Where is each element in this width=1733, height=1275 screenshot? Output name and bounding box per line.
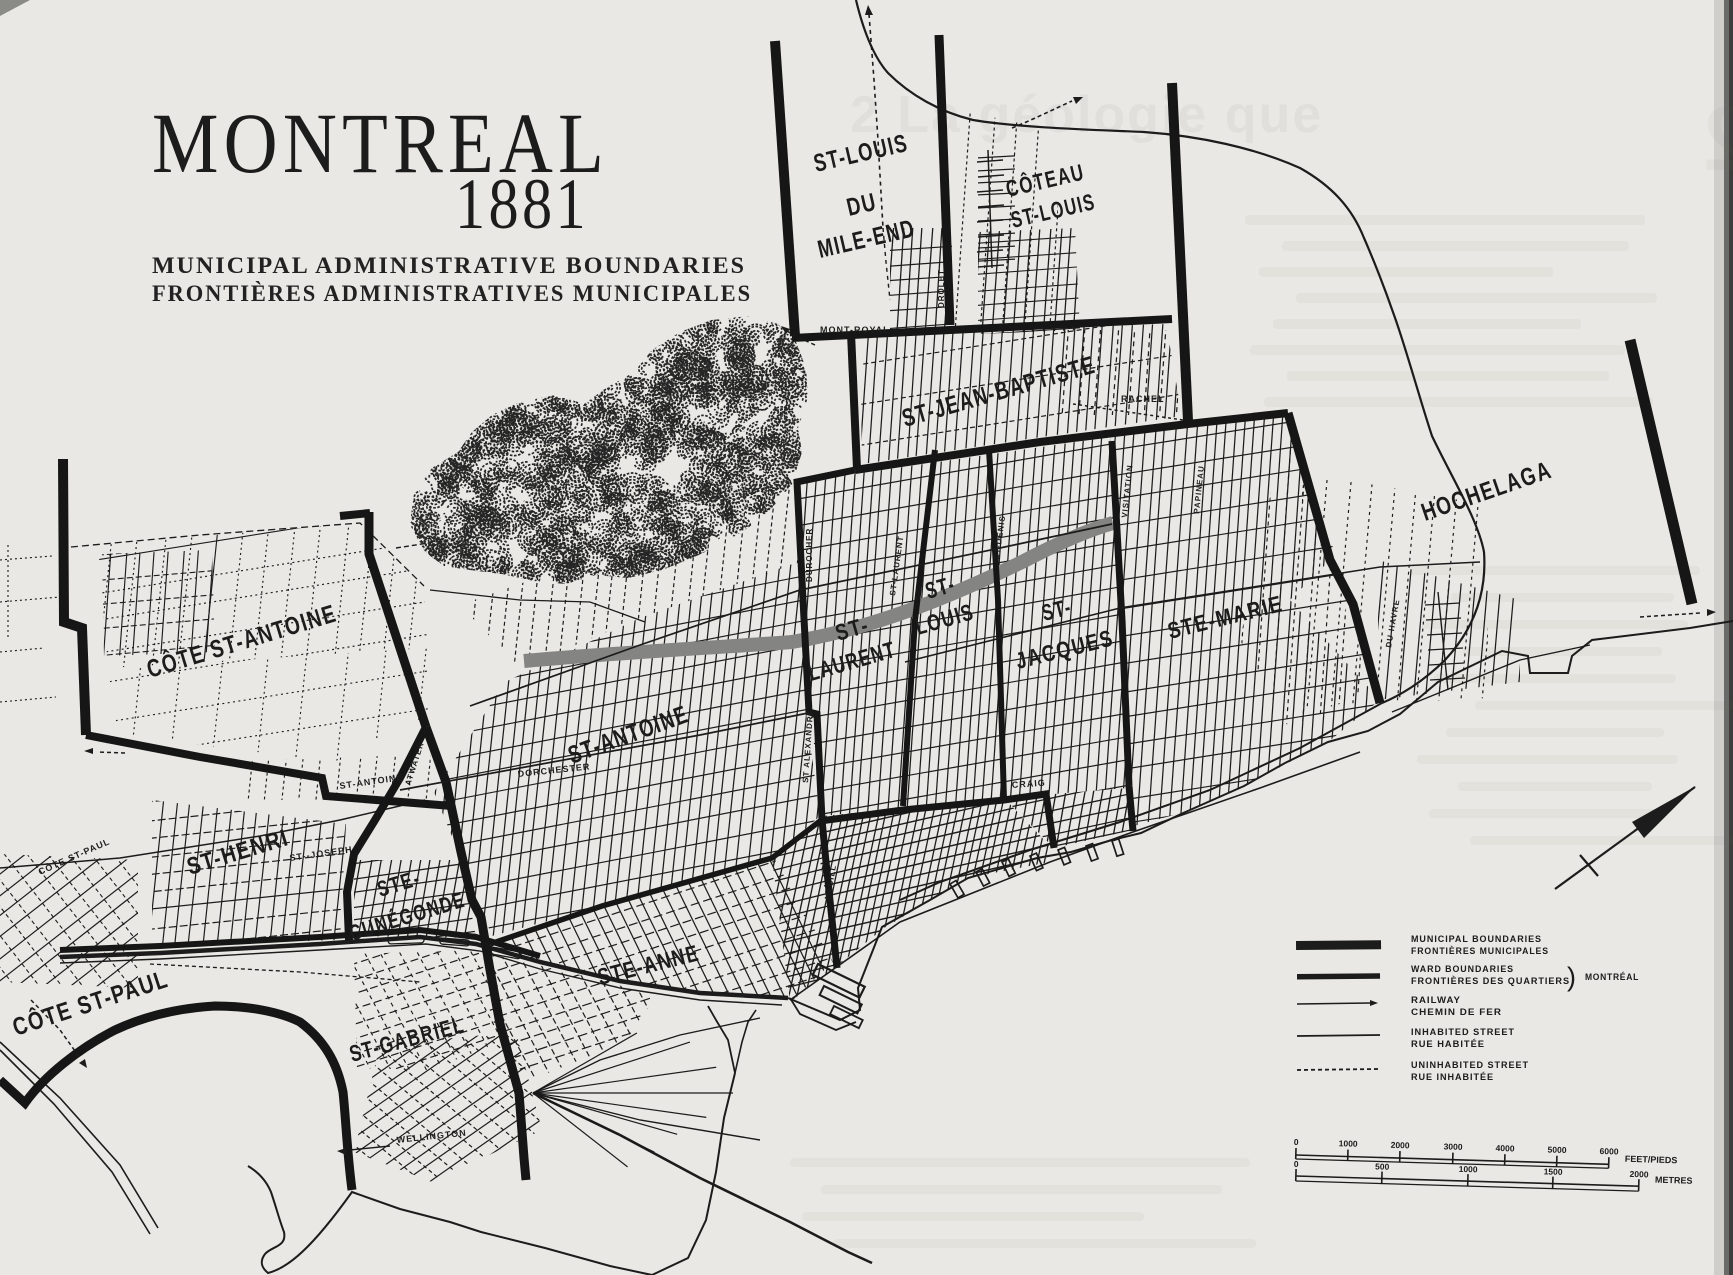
- svg-text:MUNICIPAL BOUNDARIES: MUNICIPAL BOUNDARIES: [1411, 934, 1542, 945]
- svg-text:FEET/PIEDS: FEET/PIEDS: [1625, 1154, 1678, 1166]
- svg-text:FRONTIÈRES MUNICIPALES: FRONTIÈRES MUNICIPALES: [1411, 946, 1549, 957]
- svg-text:RUE INHABITÉE: RUE INHABITÉE: [1411, 1072, 1494, 1083]
- svg-text:FRONTIÈRES ADMINISTRATIVES M: FRONTIÈRES ADMINISTRATIVES MUNICIPALES: [152, 281, 752, 307]
- svg-text:2000: 2000: [1391, 1140, 1410, 1151]
- svg-text:1500: 1500: [1544, 1166, 1563, 1177]
- svg-text:1000: 1000: [1339, 1138, 1358, 1149]
- svg-text:4000: 4000: [1496, 1143, 1515, 1154]
- svg-text:INHABITED STREET: INHABITED STREET: [1411, 1027, 1515, 1038]
- svg-text:RACHEL: RACHEL: [1121, 394, 1165, 404]
- svg-text:6000: 6000: [1599, 1146, 1618, 1157]
- svg-text:FRONTIÈRES DES QUARTIERS: FRONTIÈRES DES QUARTIERS: [1411, 976, 1570, 987]
- svg-text:RUE HABITÉE: RUE HABITÉE: [1411, 1039, 1485, 1050]
- svg-text:CHEMIN DE FER: CHEMIN DE FER: [1411, 1007, 1502, 1018]
- svg-text:DUROCHER: DUROCHER: [805, 528, 814, 582]
- svg-text:MONTRÉAL: MONTRÉAL: [1585, 972, 1639, 983]
- svg-text:): ): [1567, 962, 1576, 992]
- svg-text:RAILWAY: RAILWAY: [1411, 995, 1461, 1006]
- svg-text:WARD BOUNDARIES: WARD BOUNDARIES: [1411, 964, 1514, 975]
- svg-text:2000: 2000: [1629, 1169, 1648, 1180]
- svg-text:0: 0: [1294, 1159, 1299, 1169]
- svg-text:METRES: METRES: [1655, 1175, 1693, 1186]
- svg-text:2: 2: [1703, 85, 1733, 191]
- svg-text:1881: 1881: [455, 164, 589, 244]
- svg-text:5000: 5000: [1547, 1144, 1566, 1155]
- svg-text:2 La géologie que: 2 La géologie que: [850, 86, 1323, 144]
- svg-text:DROLET: DROLET: [937, 269, 946, 308]
- svg-text:MUNICIPAL ADMINISTRATIVE BOU: MUNICIPAL ADMINISTRATIVE BOUNDARIES: [152, 253, 746, 279]
- svg-text:MONT-ROYAL: MONT-ROYAL: [820, 325, 890, 335]
- svg-text:3000: 3000: [1444, 1141, 1463, 1152]
- svg-text:500: 500: [1375, 1161, 1390, 1171]
- svg-text:0: 0: [1294, 1137, 1299, 1147]
- svg-text:UNINHABITED STREET: UNINHABITED STREET: [1411, 1060, 1529, 1071]
- svg-text:1000: 1000: [1459, 1164, 1478, 1175]
